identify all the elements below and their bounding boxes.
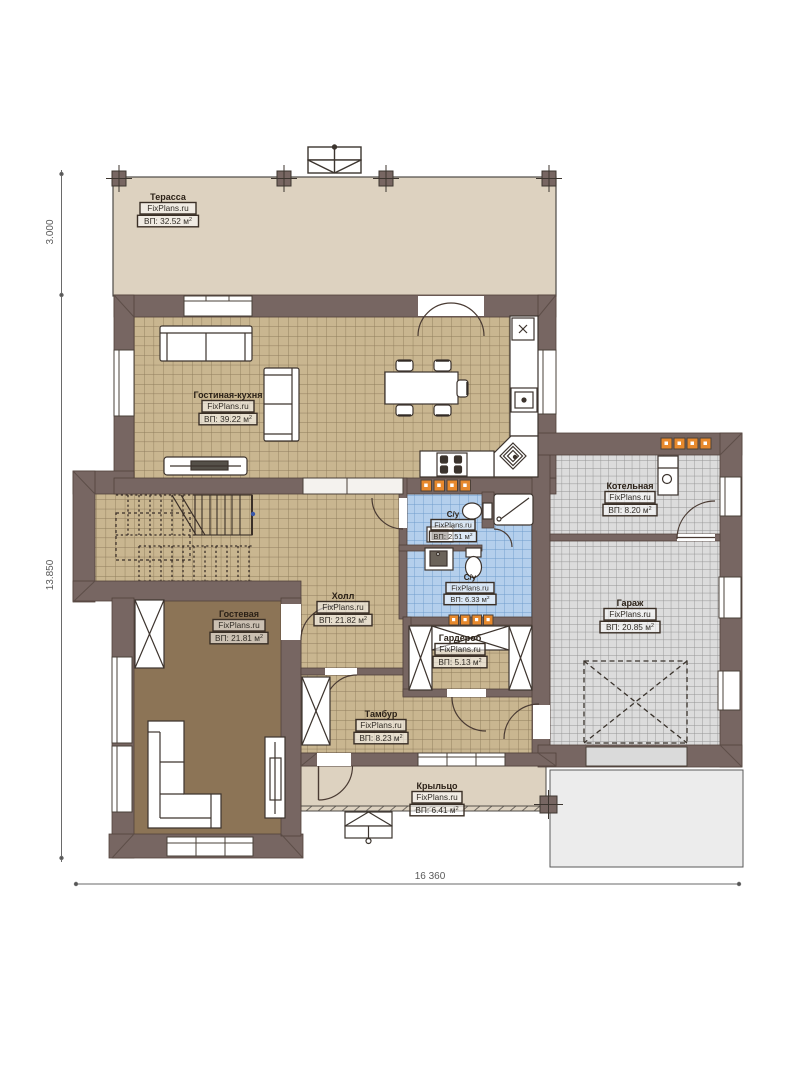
svg-text:3.000: 3.000 [45, 219, 56, 244]
svg-text:ВП: 39.22 м2: ВП: 39.22 м2 [204, 414, 252, 424]
svg-text:FixPlans.ru: FixPlans.ru [207, 401, 249, 411]
svg-text:16 360: 16 360 [415, 871, 446, 882]
svg-text:С/у: С/у [464, 573, 477, 582]
svg-text:Гостиная-кухня: Гостиная-кухня [194, 390, 263, 400]
svg-text:ВП: 21.82 м2: ВП: 21.82 м2 [319, 615, 367, 625]
svg-text:ВП: 21.81 м2: ВП: 21.81 м2 [215, 633, 263, 643]
svg-text:FixPlans.ru: FixPlans.ru [609, 609, 651, 619]
svg-text:Гардероб: Гардероб [439, 633, 482, 643]
svg-text:ВП: 8.23 м2: ВП: 8.23 м2 [359, 733, 402, 743]
svg-text:ВП: 6.33 м2: ВП: 6.33 м2 [450, 595, 489, 604]
svg-text:FixPlans.ru: FixPlans.ru [322, 602, 364, 612]
svg-text:Холл: Холл [332, 591, 355, 601]
svg-text:Котельная: Котельная [606, 481, 653, 491]
svg-text:FixPlans.ru: FixPlans.ru [360, 720, 402, 730]
svg-text:FixPlans.ru: FixPlans.ru [439, 644, 481, 654]
svg-text:FixPlans.ru: FixPlans.ru [451, 583, 489, 592]
svg-text:Крыльцо: Крыльцо [417, 781, 458, 791]
svg-text:FixPlans.ru: FixPlans.ru [434, 520, 472, 529]
svg-text:Терасса: Терасса [150, 192, 187, 202]
svg-text:ВП: 32.52 м2: ВП: 32.52 м2 [144, 216, 192, 226]
svg-text:Тамбур: Тамбур [365, 709, 398, 719]
svg-text:13.850: 13.850 [45, 559, 56, 590]
svg-text:ВП: 20.85 м2: ВП: 20.85 м2 [606, 622, 654, 632]
svg-text:ВП: 6.41 м2: ВП: 6.41 м2 [415, 805, 458, 815]
svg-text:Гостевая: Гостевая [219, 609, 259, 619]
svg-text:С/у: С/у [447, 510, 460, 519]
svg-text:FixPlans.ru: FixPlans.ru [218, 620, 260, 630]
svg-text:ВП: 2.51 м2: ВП: 2.51 м2 [433, 532, 472, 541]
svg-text:FixPlans.ru: FixPlans.ru [609, 492, 651, 502]
svg-text:ВП: 8.20 м2: ВП: 8.20 м2 [608, 505, 651, 515]
svg-text:FixPlans.ru: FixPlans.ru [147, 203, 189, 213]
svg-text:ВП: 5.13 м2: ВП: 5.13 м2 [438, 657, 481, 667]
svg-text:FixPlans.ru: FixPlans.ru [416, 792, 458, 802]
svg-text:Гараж: Гараж [617, 598, 644, 608]
